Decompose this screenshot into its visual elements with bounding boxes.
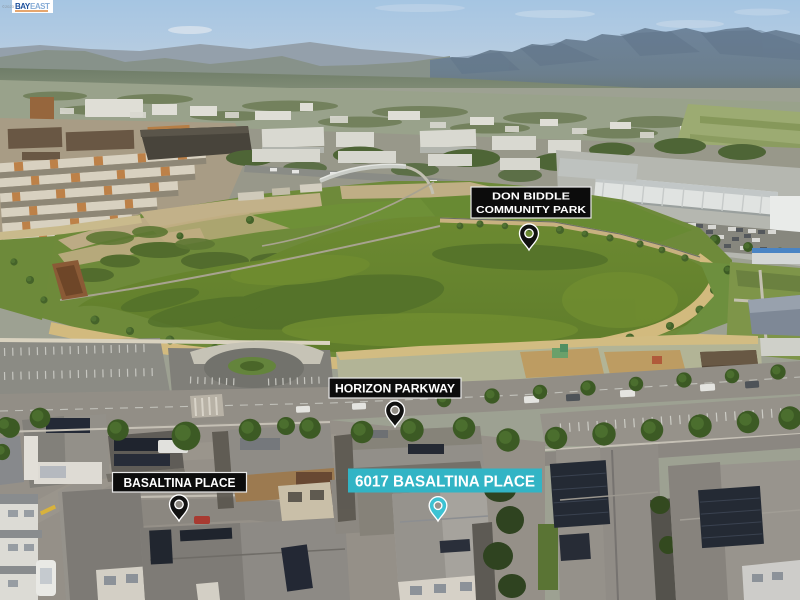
svg-text:HORIZON PARKWAY: HORIZON PARKWAY xyxy=(335,382,455,396)
svg-text:COMMUNITY PARK: COMMUNITY PARK xyxy=(476,204,586,216)
svg-text:DON BIDDLE: DON BIDDLE xyxy=(492,191,570,203)
svg-text:6017 BASALTINA PLACE: 6017 BASALTINA PLACE xyxy=(355,474,535,491)
svg-text:BASALTINA PLACE: BASALTINA PLACE xyxy=(124,476,236,490)
svg-text:BAY: BAY xyxy=(15,2,31,11)
svg-text:©2023: ©2023 xyxy=(2,4,15,9)
svg-text:EAST: EAST xyxy=(30,2,50,11)
